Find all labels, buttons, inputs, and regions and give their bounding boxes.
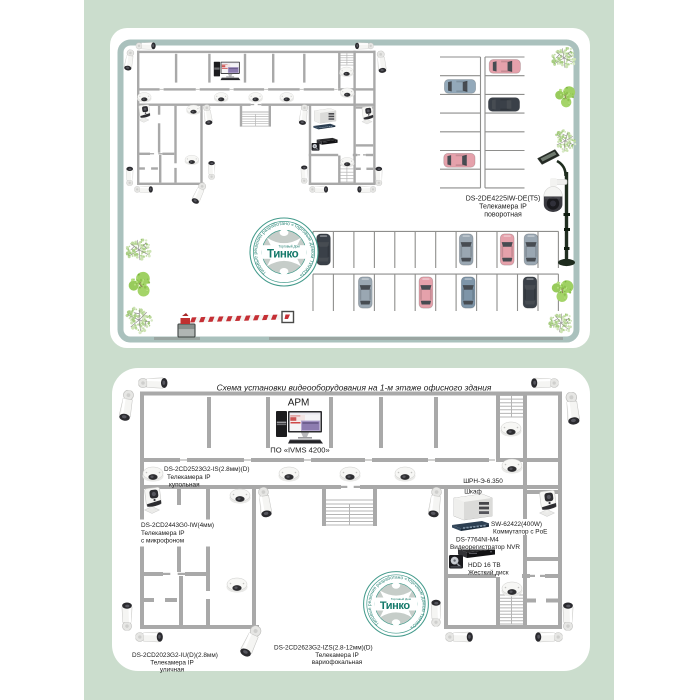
svg-text:Телекамера IP: Телекамера IP xyxy=(150,660,194,667)
svg-text:Телекамера IP: Телекамера IP xyxy=(167,474,211,481)
svg-text:ШРН-Э-6.350: ШРН-Э-6.350 xyxy=(463,478,503,485)
svg-text:Шкаф: Шкаф xyxy=(464,489,482,496)
svg-text:DS-2CD2023G2-IU(D)(2.8мм): DS-2CD2023G2-IU(D)(2.8мм) xyxy=(132,652,218,659)
svg-text:ПО «IVMS 4200»: ПО «IVMS 4200» xyxy=(270,446,330,455)
svg-text:купольная: купольная xyxy=(169,482,200,489)
svg-text:уличная: уличная xyxy=(160,667,185,674)
svg-text:SW-62422(400W): SW-62422(400W) xyxy=(491,521,542,528)
svg-text:с микрофоном: с микрофоном xyxy=(141,538,184,545)
svg-text:Тинко: Тинко xyxy=(267,248,299,260)
svg-text:DS-2DE4225IW-DE(T5): DS-2DE4225IW-DE(T5) xyxy=(466,196,541,203)
svg-text:HDD 16 ТВ: HDD 16 ТВ xyxy=(468,562,501,569)
svg-text:DS-7764NI-M4: DS-7764NI-M4 xyxy=(456,537,499,544)
svg-text:DS-2CD2623G2-IZS(2.8-12мм)(D): DS-2CD2623G2-IZS(2.8-12мм)(D) xyxy=(274,645,373,652)
svg-text:Телекамера IP: Телекамера IP xyxy=(141,530,185,537)
svg-text:DS-2CD2523G2-IS(2.8мм)(D): DS-2CD2523G2-IS(2.8мм)(D) xyxy=(164,466,250,473)
svg-text:DS-2CD2443G0-IW(4мм): DS-2CD2443G0-IW(4мм) xyxy=(141,522,214,529)
svg-text:поворотная: поворотная xyxy=(484,212,522,219)
svg-text:Жесткий диск: Жесткий диск xyxy=(468,569,509,577)
svg-text:Торговый Дом: Торговый Дом xyxy=(279,245,300,249)
svg-text:АРМ: АРМ xyxy=(288,398,310,409)
svg-text:Телекамера IP: Телекамера IP xyxy=(315,652,359,659)
svg-text:Видеорегистратор NVR: Видеорегистратор NVR xyxy=(450,544,520,551)
svg-text:вариофокальная: вариофокальная xyxy=(312,659,363,666)
svg-text:Схема установки видеооборудова: Схема установки видеооборудования на 1-м… xyxy=(217,383,492,393)
svg-text:Телекамера IP: Телекамера IP xyxy=(479,204,527,211)
svg-text:Торговый Дом: Торговый Дом xyxy=(391,597,411,601)
svg-text:Тинко: Тинко xyxy=(380,600,411,612)
svg-text:Коммутатор с PoE: Коммутатор с PoE xyxy=(493,529,547,536)
